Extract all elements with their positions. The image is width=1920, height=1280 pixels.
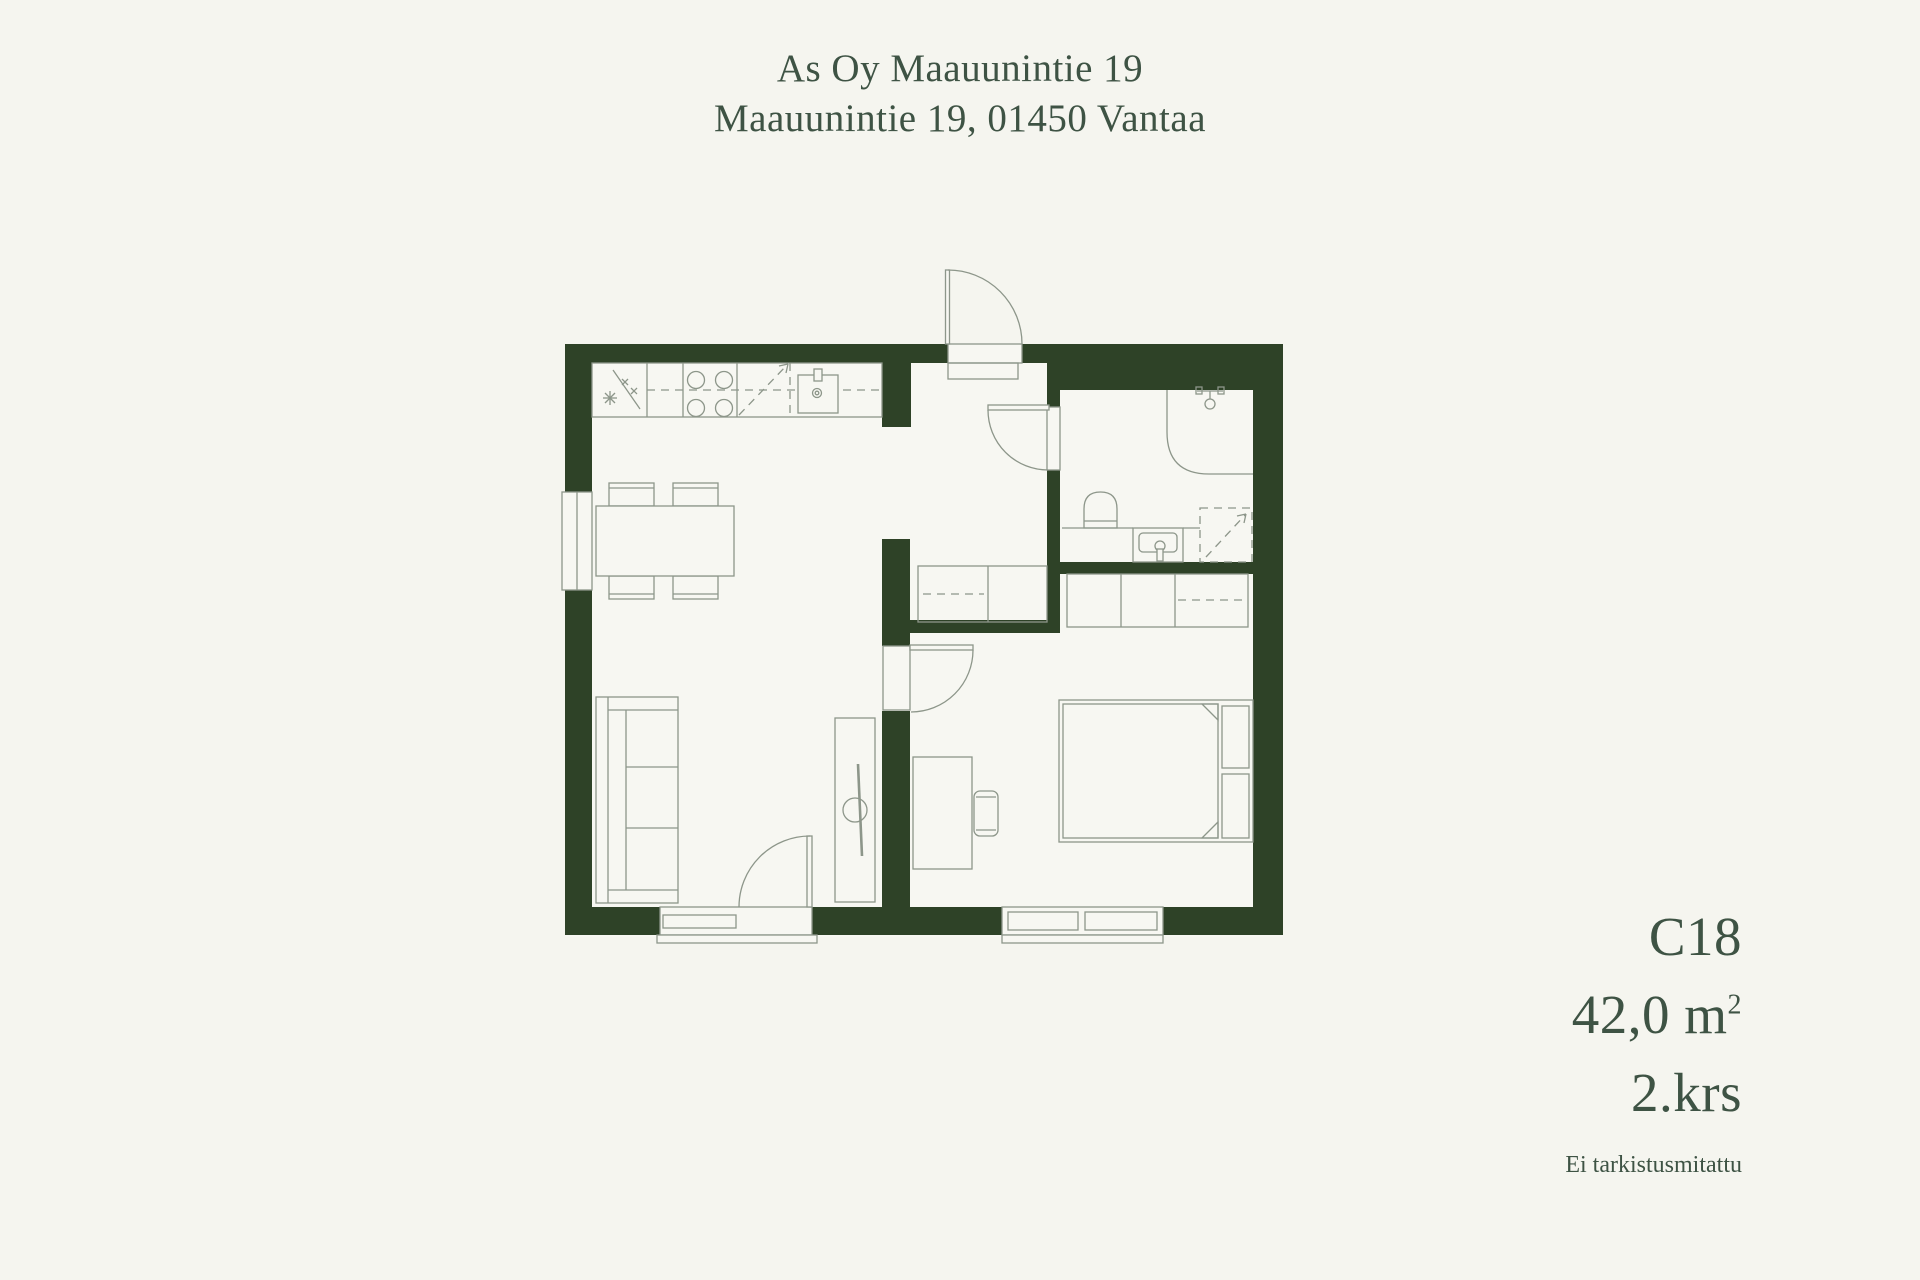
- entrance-door-opening: [948, 344, 1022, 363]
- wall-left-upper: [565, 344, 592, 492]
- bed: [1059, 700, 1253, 842]
- unit-area-value: 42,0 m: [1572, 984, 1728, 1045]
- wall-bathroom-left-upper: [1047, 363, 1060, 407]
- bedroom-door-leaf: [910, 645, 973, 650]
- kitchen-sink-faucet: [814, 369, 822, 381]
- wall-left-lower: [565, 590, 592, 935]
- unit-floor: 2.krs: [1565, 1054, 1742, 1132]
- balcony-door-leaf: [807, 836, 812, 907]
- bed-frame: [1059, 700, 1253, 842]
- entrance-door-leaf: [946, 270, 950, 344]
- bathroom-door-opening: [1047, 407, 1060, 470]
- apartment-floor: [565, 344, 1283, 937]
- kitchen-sink-icon: [798, 369, 838, 413]
- bedroom-door-opening: [883, 646, 910, 710]
- unit-area-exponent: 2: [1728, 990, 1743, 1021]
- dining-table: [596, 506, 734, 576]
- wall-right: [1253, 344, 1283, 935]
- balcony-sill: [657, 935, 817, 943]
- page-background: As Oy Maauunintie 19 Maauunintie 19, 014…: [0, 0, 1920, 1280]
- wall-bathroom-bottom: [1047, 562, 1283, 574]
- bedroom-window: [1002, 907, 1163, 935]
- kitchen: [592, 363, 882, 417]
- unit-area: 42,0 m2: [1565, 976, 1742, 1054]
- wall-bathroom-left-lower: [1047, 470, 1060, 628]
- entrance-door-swing-arc: [948, 270, 1022, 344]
- wall-middle-lower: [882, 711, 910, 935]
- bedroom-window-sill: [1002, 935, 1163, 943]
- wall-top-right: [1022, 344, 1283, 363]
- bathroom-sink-faucet-stem: [1157, 549, 1163, 561]
- wall-bathroom-top: [1047, 363, 1283, 390]
- wall-bottom-left: [565, 907, 660, 935]
- unit-info: C18 42,0 m2 2.krs Ei tarkistusmitattu: [1565, 898, 1742, 1180]
- unit-id: C18: [1565, 898, 1742, 976]
- bathroom-door-leaf: [988, 405, 1049, 410]
- bathroom-sink-icon: [1133, 528, 1183, 562]
- wall-kitchen-partition: [882, 344, 911, 427]
- measurement-note: Ei tarkistusmitattu: [1565, 1150, 1742, 1180]
